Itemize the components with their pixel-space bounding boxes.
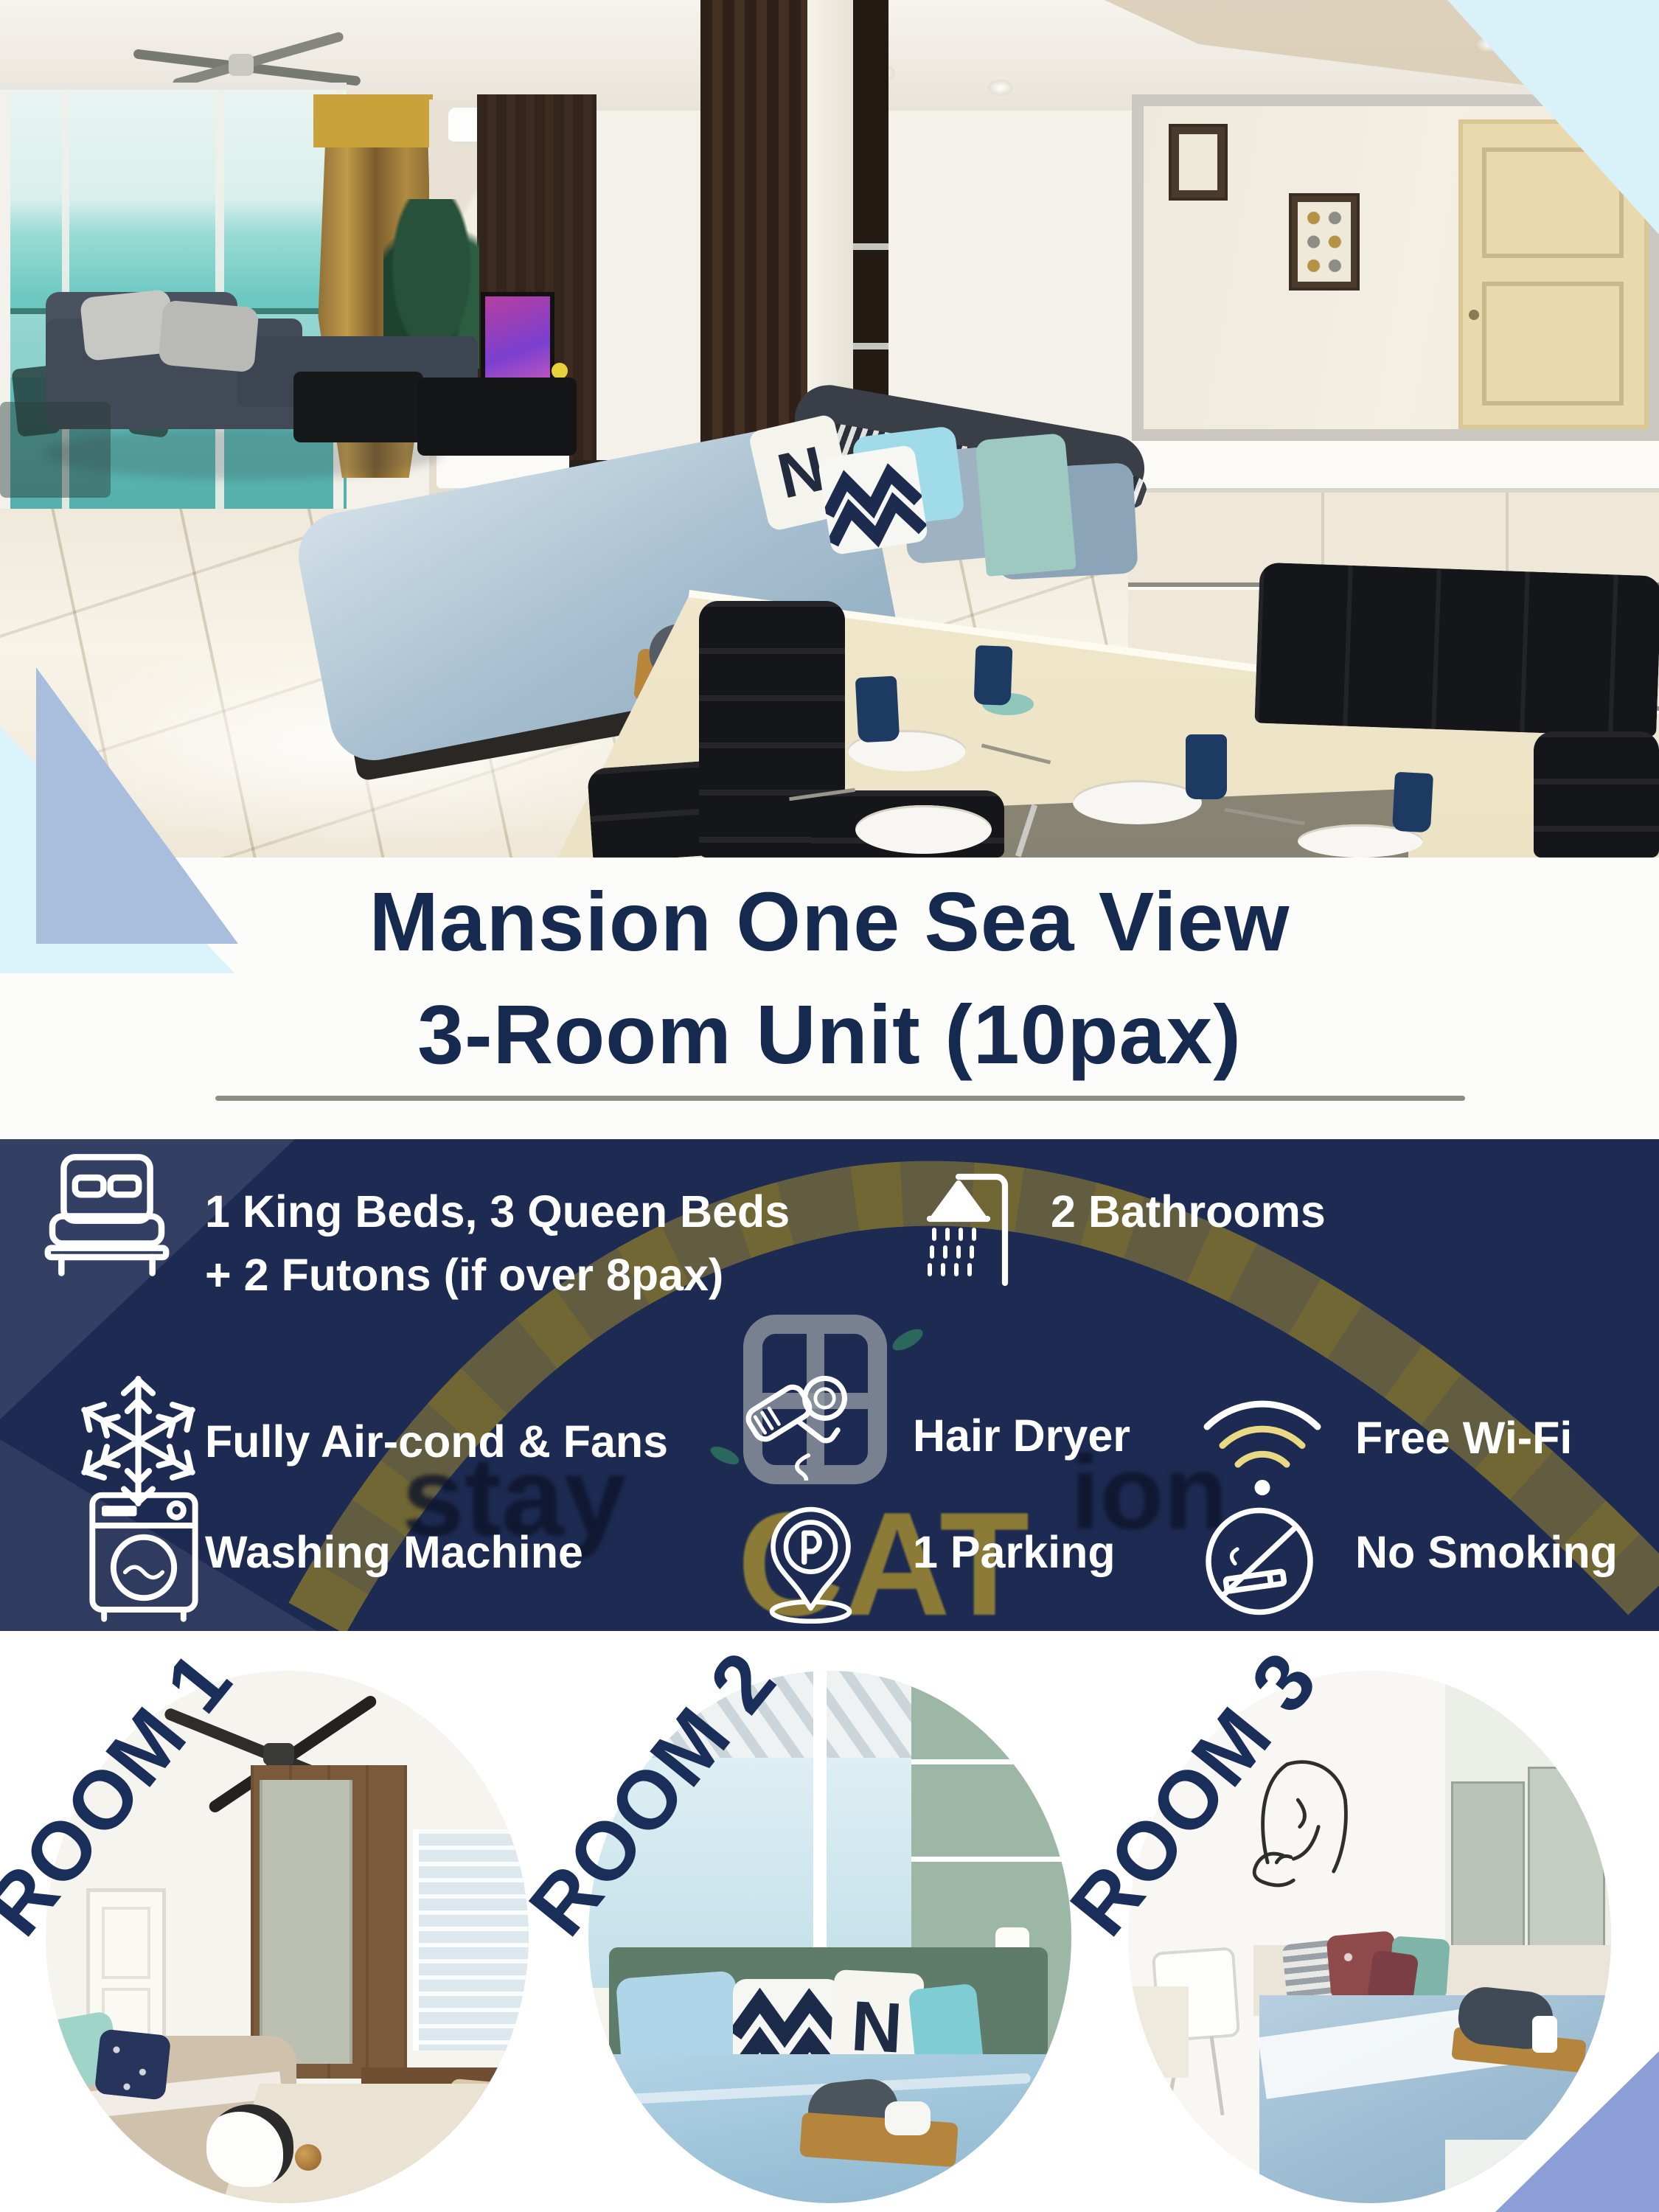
beds-label-line1: 1 King Beds, 3 Queen Beds — [205, 1180, 790, 1243]
room3-towel-white — [1532, 2016, 1557, 2053]
plate — [855, 805, 992, 854]
navy-cup — [1392, 772, 1433, 833]
room1-window — [413, 1829, 529, 2051]
title-line-1: Mansion One Sea View — [0, 866, 1659, 978]
parking-label: 1 Parking — [913, 1526, 1116, 1579]
room2-window-mullion — [813, 1671, 827, 1988]
room2-shelf — [911, 1857, 1071, 1862]
kitchen-counter-top — [1128, 441, 1659, 493]
glass-side-table — [0, 402, 111, 498]
washer-label: Washing Machine — [205, 1526, 583, 1579]
room1-pillow-navy — [94, 2028, 172, 2101]
teal-chair — [975, 433, 1077, 577]
room1-wood-ball — [295, 2144, 321, 2171]
beds-label: 1 King Beds, 3 Queen Beds + 2 Futons (if… — [205, 1180, 790, 1307]
washing-machine-icon — [74, 1480, 214, 1627]
living-room-photo: N — [0, 0, 1659, 858]
dining-chair — [1534, 731, 1659, 858]
plate — [1073, 780, 1202, 824]
amenities-panel: stay CAT ion 1 King Beds, 3 Queen Beds +… — [0, 1139, 1659, 1631]
sofa-cushion — [158, 300, 259, 373]
bed-icon — [33, 1148, 181, 1284]
curtain-top-band — [313, 94, 433, 147]
coffee-table — [417, 378, 577, 456]
glass-shelf-bracket — [853, 243, 888, 250]
navy-cup — [974, 645, 1013, 706]
pillow-zigzag — [817, 444, 928, 555]
navy-cup — [1186, 734, 1227, 799]
wifi-icon — [1196, 1372, 1329, 1512]
door-panel — [1482, 282, 1624, 406]
hairdryer-label: Hair Dryer — [913, 1409, 1130, 1462]
hair-dryer-icon — [734, 1337, 874, 1481]
room2-shelf — [911, 1759, 1071, 1764]
page-title: Mansion One Sea View 3-Room Unit (10pax) — [0, 866, 1659, 1091]
flyer-page: N — [0, 0, 1659, 2212]
zigzag-pattern — [817, 444, 928, 555]
window-top-frame — [0, 83, 347, 90]
navy-cup — [855, 676, 900, 743]
ottoman — [293, 372, 423, 442]
downlight — [988, 80, 1013, 96]
room1-cat-plush — [206, 2104, 293, 2187]
wifi-label: Free Wi-Fi — [1355, 1411, 1572, 1464]
aircond-label: Fully Air-cond & Fans — [205, 1415, 668, 1468]
beds-label-line2: + 2 Futons (if over 8pax) — [205, 1243, 790, 1307]
bathrooms-label: 2 Bathrooms — [1051, 1185, 1326, 1238]
no-smoking-icon — [1193, 1493, 1326, 1630]
rooms-section: N — [0, 1631, 1659, 2212]
wall-art-medallions — [1289, 193, 1360, 291]
title-divider — [215, 1096, 1465, 1101]
shower-icon — [901, 1154, 1034, 1301]
nosmoking-label: No Smoking — [1355, 1526, 1618, 1579]
dining-bench — [1254, 563, 1659, 737]
room3-side-table — [1128, 1986, 1189, 2078]
title-line-2: 3-Room Unit (10pax) — [0, 978, 1659, 1091]
room1-frosted-doors — [260, 1780, 352, 2064]
door-knob — [1469, 310, 1479, 320]
glass-shelf-bracket — [853, 343, 888, 349]
room2-towel-white — [885, 2101, 931, 2135]
parking-icon — [746, 1489, 875, 1631]
wall-art-frame — [1169, 124, 1228, 201]
console-flower — [552, 363, 568, 379]
